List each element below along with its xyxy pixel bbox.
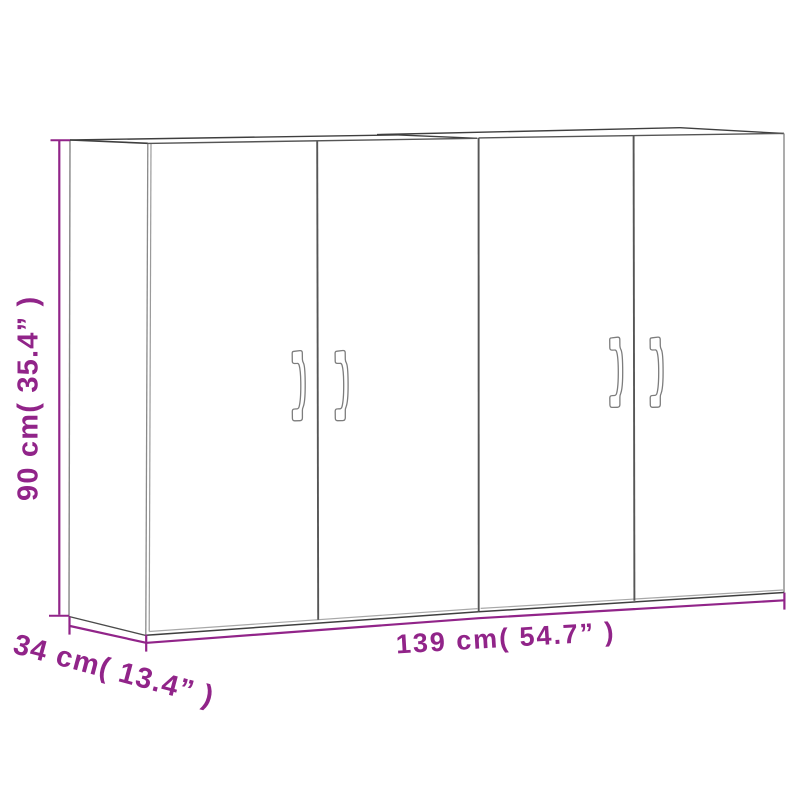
svg-text:90 cm( 35.4” ): 90 cm( 35.4” ) — [13, 296, 45, 501]
